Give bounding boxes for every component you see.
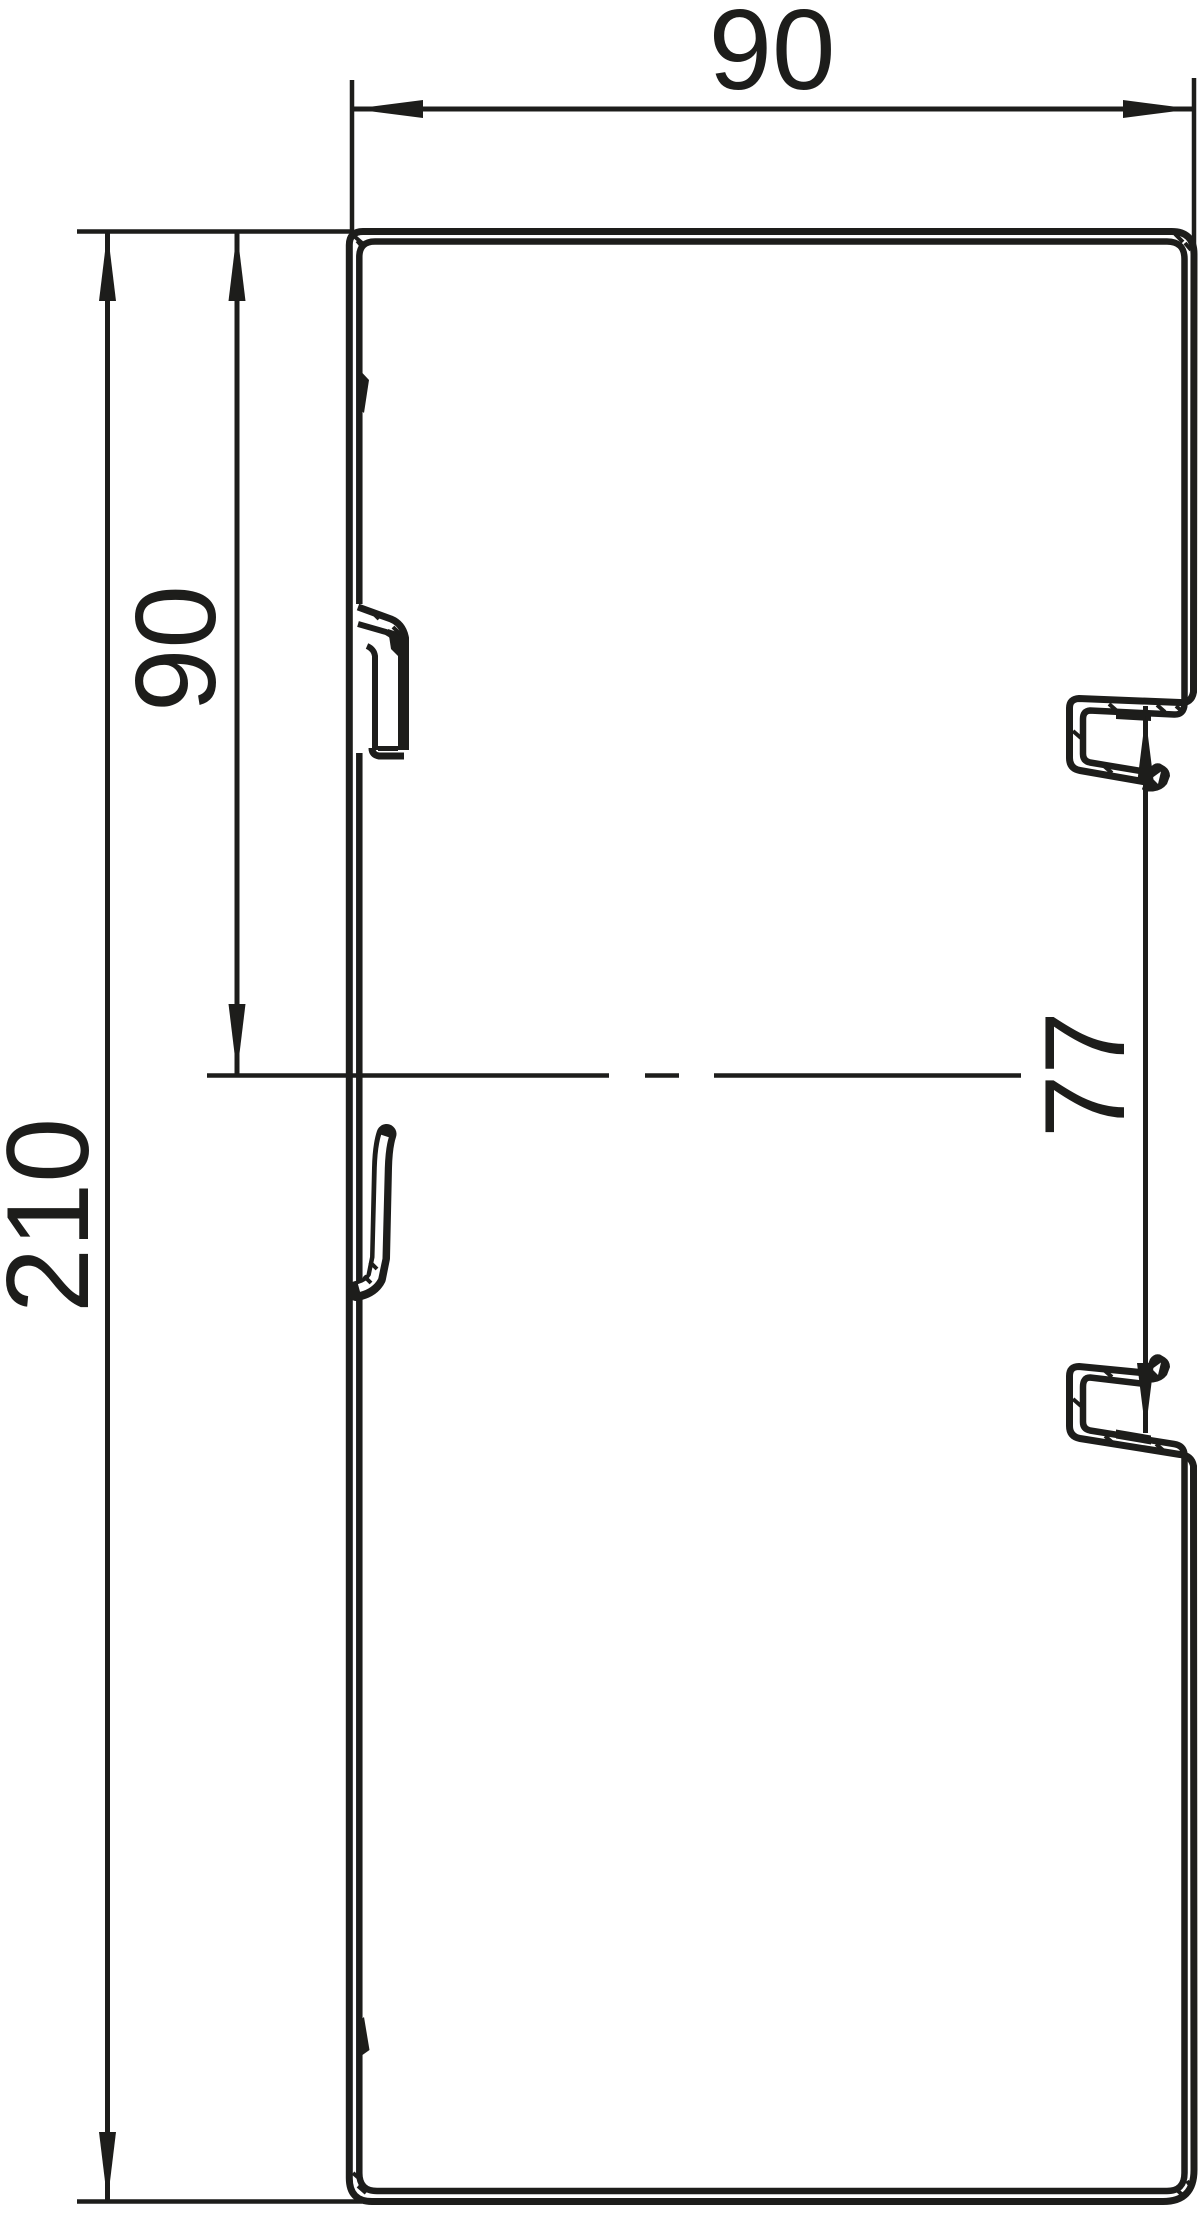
svg-text:77: 77	[1022, 1011, 1149, 1138]
svg-text:90: 90	[709, 0, 836, 114]
svg-text:210: 210	[0, 1118, 113, 1313]
svg-text:90: 90	[113, 585, 240, 712]
